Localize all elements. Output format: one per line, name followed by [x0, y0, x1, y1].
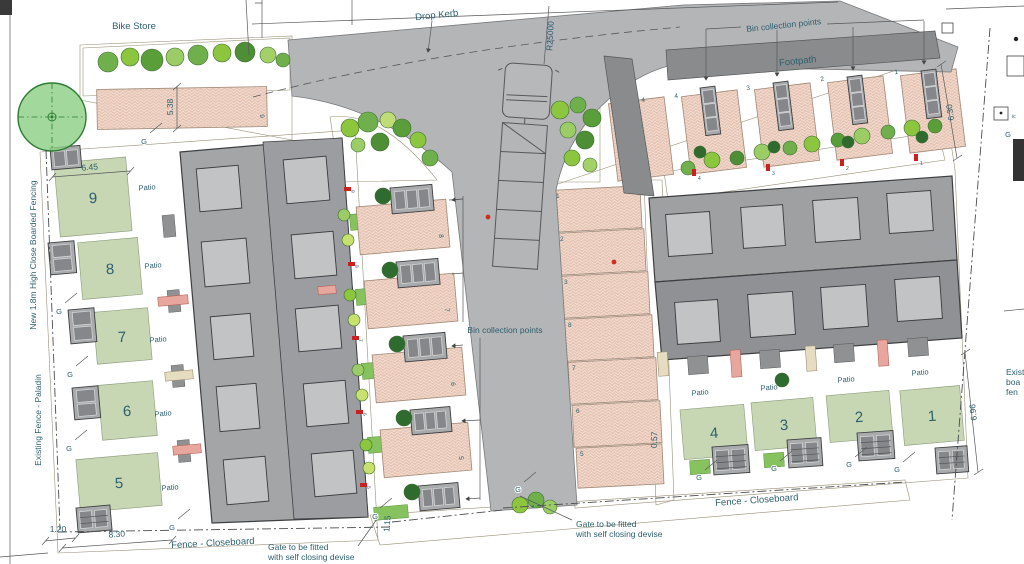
patio-label: Patio — [161, 482, 179, 492]
gate-label: G — [771, 464, 777, 473]
marker-6: 6 — [361, 413, 367, 417]
dim-8-30: 8.30 — [108, 528, 125, 539]
ic-label: ic — [1012, 114, 1016, 120]
plot-6: 6 — [122, 403, 131, 420]
plot-7: 7 — [117, 329, 126, 346]
left-building — [180, 138, 368, 523]
plot-8: 8 — [105, 261, 114, 278]
radius-label: R25000 — [544, 21, 556, 52]
marker-9: 9 — [349, 190, 355, 194]
space-9: 9 — [258, 114, 265, 118]
bike-store-label: Bike Store — [112, 21, 156, 32]
existing-fence-right-2: boa — [1006, 377, 1020, 387]
gate-note-left-1: Gate to be fitted — [268, 542, 329, 552]
marker-4: 4 — [698, 176, 701, 182]
c-space-6: 6 — [576, 408, 580, 415]
c-space-5: 5 — [580, 451, 584, 458]
gate-label: G — [846, 460, 852, 469]
new-fence-label: New 1.8m High Close Boarded Fencing — [28, 180, 38, 330]
bottom-fence — [58, 482, 905, 532]
existing-fence-label: Existing Fence - Paladin — [33, 374, 43, 466]
plot-2: 2 — [854, 409, 864, 427]
patio-label: Patio — [760, 382, 778, 392]
t-space-4b: 4 — [674, 93, 679, 100]
bin-collection-mid-label: Bin collection points — [467, 325, 542, 335]
gate-label: G — [1005, 130, 1011, 139]
marker-3: 3 — [772, 171, 775, 177]
plot-3: 3 — [779, 417, 789, 435]
t-space-2: 2 — [820, 76, 825, 83]
gate-label: G — [696, 473, 702, 482]
gate-label: G — [56, 307, 62, 316]
dim-1-20: 1.20 — [50, 524, 67, 534]
gate-label: G — [141, 137, 147, 146]
plot-4: 4 — [709, 425, 719, 443]
gate-note-right-2: with self closing devise — [575, 529, 663, 539]
existing-tree — [18, 83, 86, 151]
marker-1: 1 — [920, 161, 923, 167]
gate-note-right-1: Gate to be fitted — [576, 519, 637, 529]
patio-label: Patio — [144, 260, 162, 270]
marker-5: 5 — [365, 486, 371, 490]
c-space-2: 2 — [560, 236, 564, 243]
dim-6-45: 6.45 — [81, 161, 99, 172]
dim-0-57: 0.57 — [649, 431, 660, 448]
existing-fence-right-3: fen — [1006, 387, 1018, 397]
plot-1: 1 — [927, 408, 937, 426]
corner-mark — [0, 0, 12, 15]
dim-6-96: 6.96 — [967, 403, 979, 421]
gate-note-left-2: with self closing devise — [267, 552, 355, 562]
c-space-3: 3 — [564, 279, 568, 286]
dim-5-38: 5.38 — [165, 98, 175, 115]
dim-1-15: 1.15 — [381, 515, 392, 533]
plot-5: 5 — [114, 475, 123, 492]
patio-label: Patio — [154, 408, 172, 418]
marker-2: 2 — [846, 166, 849, 172]
marker-8: 8 — [353, 265, 359, 269]
patio-label: Patio — [911, 367, 929, 377]
fence-closeboard-right-label: Fence - Closeboard — [715, 492, 799, 509]
site-plan: Bike Store Drop Kerb R25000 Bin collecti… — [0, 0, 1024, 564]
c-space-8: 8 — [568, 322, 572, 329]
patio-label: Patio — [149, 334, 167, 344]
right-building — [649, 176, 962, 360]
patio-label: Patio — [837, 374, 855, 384]
patio-label: Patio — [691, 387, 709, 397]
plot-9: 9 — [88, 190, 97, 207]
existing-fence-right-1: Exist — [1006, 367, 1024, 377]
gate-label: G — [372, 512, 378, 521]
site-plan-drawing: Bike Store Drop Kerb R25000 Bin collecti… — [0, 0, 1024, 564]
marker-7: 7 — [357, 339, 363, 343]
t-space-3: 3 — [746, 85, 751, 92]
gate-label: G — [894, 465, 900, 474]
c-space-7: 7 — [572, 365, 576, 372]
fence-closeboard-left-label: Fence - Closeboard — [171, 536, 255, 551]
patio-label: Patio — [138, 182, 156, 192]
gate-label: G — [515, 485, 521, 494]
gate-label: G — [66, 444, 72, 453]
c-space-1: 1 — [556, 193, 560, 200]
gate-label: G — [67, 370, 73, 379]
drop-kerb-label: Drop Kerb — [415, 8, 459, 23]
gate-label: G — [169, 523, 175, 532]
